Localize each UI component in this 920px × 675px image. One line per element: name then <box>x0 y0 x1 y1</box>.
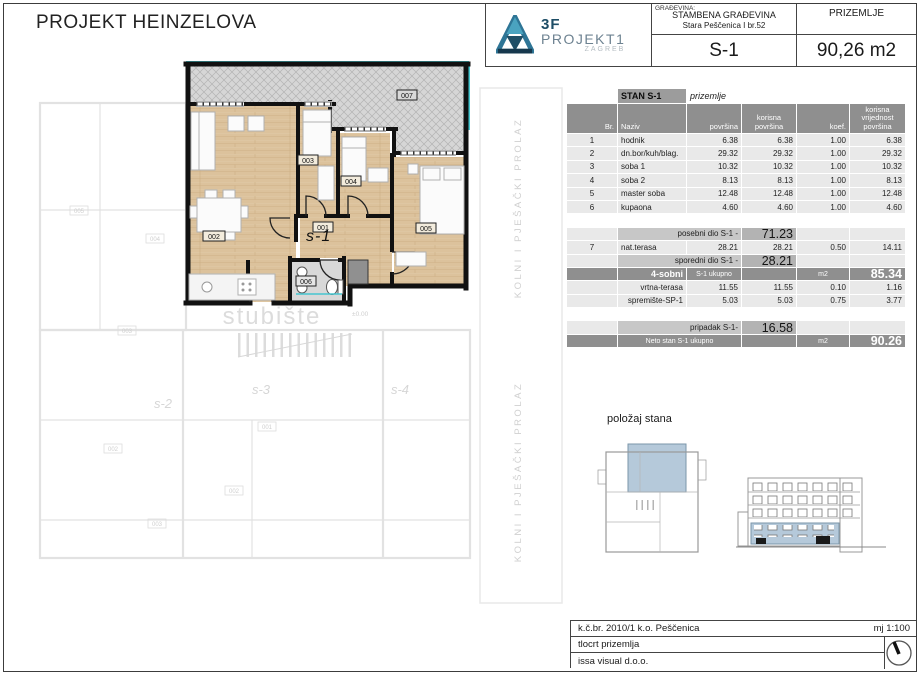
table-cell: 85.34 <box>850 268 905 280</box>
table-cell: korisna površina <box>742 104 796 133</box>
svg-text:002: 002 <box>229 489 240 495</box>
table-cell: 0.50 <box>797 241 849 253</box>
unit-id: S-1 <box>652 35 796 66</box>
table-cell <box>567 321 617 333</box>
floor-box: PRIZEMLJE 90,26 m2 <box>796 3 916 67</box>
table-row: 7nat.terasa28.2128.210.5014.11 <box>567 241 905 253</box>
table-cell <box>567 281 617 293</box>
table-cell: 1.00 <box>797 201 849 213</box>
table-cell: 1.00 <box>797 134 849 146</box>
table-cell: 16.58 <box>742 321 796 333</box>
table-cell <box>687 214 741 226</box>
table-cell: spremište-SP-1 <box>618 295 686 307</box>
table-cell: Br. <box>567 104 617 133</box>
room-label-006: 006 <box>300 279 312 286</box>
table-cell <box>567 308 617 320</box>
table-cell <box>797 228 849 240</box>
table-cell: sporedni dio S-1 - <box>618 255 741 267</box>
table-row: Neto stan S-1 ukupnom290.26 <box>567 335 905 347</box>
unit-label-s3: s-3 <box>252 382 271 397</box>
table-cell <box>850 255 905 267</box>
apartment-plan: 001 002 003 004 005 006 007 s-1 <box>186 62 469 304</box>
unit-label-s4: s-4 <box>391 382 409 397</box>
table-cell <box>567 255 617 267</box>
table-cell: 6.38 <box>850 134 905 146</box>
table-cell: Neto stan S-1 ukupno <box>618 335 741 347</box>
table-cell <box>567 228 617 240</box>
svg-text:003: 003 <box>122 329 133 335</box>
table-cell: 3.77 <box>850 295 905 307</box>
table-cell: 6.38 <box>687 134 741 146</box>
table-row: 4soba 28.138.131.008.13 <box>567 174 905 186</box>
key-plan <box>598 444 706 552</box>
table-cell <box>850 228 905 240</box>
table-cell: 14.11 <box>850 241 905 253</box>
table-cell: 4.60 <box>742 201 796 213</box>
table-cell: 11.55 <box>687 281 741 293</box>
table-row: 5master soba12.4812.481.0012.48 <box>567 188 905 200</box>
building-label: GRAĐEVINA: <box>655 5 695 12</box>
table-cell: 28.21 <box>742 241 796 253</box>
table-cell: 10.32 <box>850 161 905 173</box>
table-cell: prizemlje <box>687 89 741 103</box>
table-cell: 5.03 <box>687 295 741 307</box>
unit-label-s2: s-2 <box>154 396 173 411</box>
table-cell: 1.00 <box>797 161 849 173</box>
table-cell: kupaona <box>618 201 686 213</box>
table-cell: 4 <box>567 174 617 186</box>
logo-brand: 3F <box>541 17 625 32</box>
corridor-label-lower: KOLNI I PJEŠAČKI PROLAZ <box>513 382 524 563</box>
room-label-007: 007 <box>401 93 413 100</box>
table-cell <box>567 89 617 103</box>
table-cell: 4.60 <box>850 201 905 213</box>
table-cell <box>742 89 796 103</box>
table-cell: 6.38 <box>742 134 796 146</box>
table-row: Br.Nazivpovršinakorisna površinakoef.kor… <box>567 104 905 133</box>
table-row: 6kupaona4.604.601.004.60 <box>567 201 905 213</box>
table-cell: 1.00 <box>797 174 849 186</box>
table-cell: 28.21 <box>687 241 741 253</box>
table-cell: 4.60 <box>687 201 741 213</box>
svg-text:004: 004 <box>150 237 161 243</box>
room-label-004: 004 <box>345 179 357 186</box>
table-cell <box>618 308 686 320</box>
table-cell: m2 <box>797 335 849 347</box>
table-row: 3soba 110.3210.321.0010.32 <box>567 161 905 173</box>
unit-label: s-1 <box>306 228 331 245</box>
table-cell <box>567 335 617 347</box>
table-cell: 1.00 <box>797 147 849 159</box>
table-cell: 4-sobni <box>618 268 686 280</box>
table-cell: površina <box>687 104 741 133</box>
table-cell: 29.32 <box>687 147 741 159</box>
table-cell <box>797 321 849 333</box>
table-cell: koef. <box>797 104 849 133</box>
table-cell: 29.32 <box>850 147 905 159</box>
table-cell <box>797 89 849 103</box>
table-cell: 6 <box>567 201 617 213</box>
svg-text:001: 001 <box>262 425 273 431</box>
scale: mj 1:100 <box>874 623 910 634</box>
room-label-002: 002 <box>208 234 220 241</box>
svg-text:005: 005 <box>74 209 85 215</box>
table-cell <box>850 308 905 320</box>
table-cell: 1.00 <box>797 188 849 200</box>
table-cell: 5.03 <box>742 295 796 307</box>
table-cell: pripadak S-1- <box>618 321 741 333</box>
room-label-005: 005 <box>420 226 432 233</box>
table-cell: soba 2 <box>618 174 686 186</box>
table-cell: 28.21 <box>742 255 796 267</box>
table-row: sporedni dio S-1 -28.21 <box>567 255 905 267</box>
building-box: GRAĐEVINA: STAMBENA GRAĐEVINA Stara Pešč… <box>651 3 796 67</box>
table-cell <box>850 321 905 333</box>
parcel-number: k.č.br. 2010/1 k.o. Peščenica <box>578 623 699 634</box>
table-cell: 90.26 <box>850 335 905 347</box>
table-row: posebni dio S-1 -71.23 <box>567 228 905 240</box>
table-cell <box>797 214 849 226</box>
table-cell: 10.32 <box>742 161 796 173</box>
table-cell: nat.terasa <box>618 241 686 253</box>
title-header: 3F PROJEKT1 ZAGREB GRAĐEVINA: STAMBENA G… <box>485 3 916 67</box>
table-cell <box>567 268 617 280</box>
logo-name: PROJEKT1 <box>541 32 625 46</box>
table-cell <box>850 89 905 103</box>
table-row: spremište-SP-15.035.030.753.77 <box>567 295 905 307</box>
table-row: pripadak S-1-16.58 <box>567 321 905 333</box>
table-cell: 3 <box>567 161 617 173</box>
table-cell <box>742 214 796 226</box>
table-cell <box>742 268 796 280</box>
svg-text:002: 002 <box>108 447 119 453</box>
table-cell <box>797 308 849 320</box>
table-cell <box>850 214 905 226</box>
table-cell: 1.16 <box>850 281 905 293</box>
drawing-name: tlocrt prizemlja <box>578 639 639 650</box>
table-cell: 11.55 <box>742 281 796 293</box>
table-cell: m2 <box>797 268 849 280</box>
table-cell <box>618 214 686 226</box>
room-label-003: 003 <box>302 158 314 165</box>
table-cell: soba 1 <box>618 161 686 173</box>
table-cell: 8.13 <box>850 174 905 186</box>
table-cell: 8.13 <box>742 174 796 186</box>
table-cell: S-1 ukupno <box>687 268 741 280</box>
table-cell <box>687 308 741 320</box>
table-cell <box>742 335 796 347</box>
drawing-sheet: stubište s-2 s-3 s-4 KOLNI I PJEŠAČKI PR… <box>0 0 920 675</box>
table-cell: vrtna-terasa <box>618 281 686 293</box>
area-table: STAN S-1prizemljeBr.Nazivpovršinakorisna… <box>567 89 905 347</box>
table-row: 1hodnik6.386.381.006.38 <box>567 134 905 146</box>
unit-area: 90,26 m2 <box>797 35 916 66</box>
table-row <box>567 308 905 320</box>
logo-triangle-icon <box>496 15 534 55</box>
position-section-title: položaj stana <box>607 413 672 425</box>
table-cell: 0.75 <box>797 295 849 307</box>
logo-city: ZAGREB <box>541 46 625 53</box>
floor-name: PRIZEMLJE <box>797 3 916 35</box>
company-name: issa visual d.o.o. <box>578 656 648 667</box>
table-cell <box>742 308 796 320</box>
table-cell: 71.23 <box>742 228 796 240</box>
elevation-marker: ±0.00 <box>352 311 369 318</box>
stairs-label: stubište <box>223 303 322 330</box>
svg-text:003: 003 <box>152 522 163 528</box>
table-row: 2dn.bor/kuh/blag.29.3229.321.0029.32 <box>567 147 905 159</box>
table-cell: 0.10 <box>797 281 849 293</box>
table-cell: posebni dio S-1 - <box>618 228 741 240</box>
table-cell: 7 <box>567 241 617 253</box>
table-cell: korisna vrijednost površina <box>850 104 905 133</box>
table-cell: 1 <box>567 134 617 146</box>
table-cell: 5 <box>567 188 617 200</box>
table-row: STAN S-1prizemlje <box>567 89 905 103</box>
key-plan-highlight <box>628 444 686 492</box>
table-row: vrtna-terasa11.5511.550.101.16 <box>567 281 905 293</box>
table-row: 4-sobniS-1 ukupnom285.34 <box>567 268 905 280</box>
corridor-label-upper: KOLNI I PJEŠAČKI PROLAZ <box>513 118 524 299</box>
table-row <box>567 214 905 226</box>
table-cell: STAN S-1 <box>618 89 686 103</box>
table-cell: 12.48 <box>687 188 741 200</box>
table-cell: dn.bor/kuh/blag. <box>618 147 686 159</box>
table-cell <box>797 255 849 267</box>
table-cell: hodnik <box>618 134 686 146</box>
elevation-drawing <box>736 478 886 552</box>
table-cell: master soba <box>618 188 686 200</box>
table-cell: 29.32 <box>742 147 796 159</box>
title-block: k.č.br. 2010/1 k.o. Peščenica mj 1:100 t… <box>570 620 916 668</box>
table-cell: 2 <box>567 147 617 159</box>
north-arrow-cell <box>884 637 917 669</box>
logo: 3F PROJEKT1 ZAGREB <box>485 3 651 67</box>
table-cell: 12.48 <box>850 188 905 200</box>
table-cell <box>567 214 617 226</box>
table-cell: 12.48 <box>742 188 796 200</box>
table-cell <box>567 295 617 307</box>
table-cell: 8.13 <box>687 174 741 186</box>
building-address: Stara Peščenica I br.52 <box>652 21 796 30</box>
table-cell: 10.32 <box>687 161 741 173</box>
table-cell: Naziv <box>618 104 686 133</box>
